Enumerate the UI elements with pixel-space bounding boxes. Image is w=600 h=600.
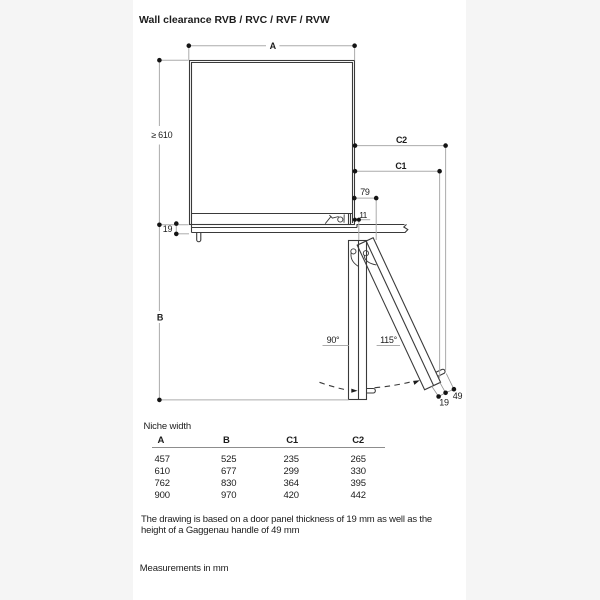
svg-text:19: 19	[163, 224, 173, 234]
svg-text:19: 19	[439, 397, 449, 407]
svg-text:A: A	[270, 41, 277, 51]
svg-text:79: 79	[360, 187, 370, 197]
svg-text:11: 11	[359, 210, 367, 220]
svg-text:90°: 90°	[327, 335, 340, 345]
svg-text:C1: C1	[395, 161, 406, 171]
svg-text:B: B	[157, 312, 164, 322]
svg-text:49: 49	[453, 391, 463, 401]
svg-text:115°: 115°	[380, 335, 397, 345]
svg-text:C2: C2	[396, 135, 407, 145]
svg-text:≥ 610: ≥ 610	[151, 130, 172, 140]
